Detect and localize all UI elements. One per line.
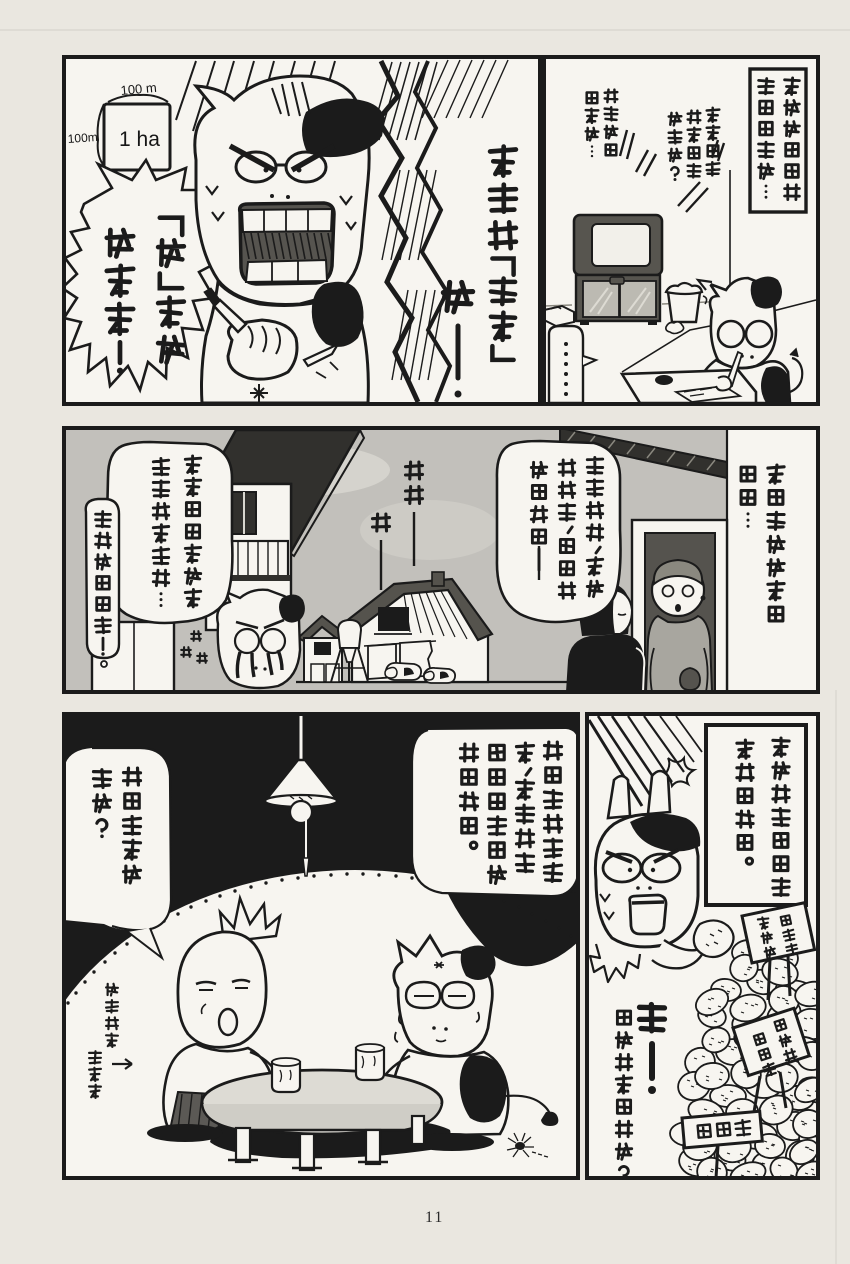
svg-text:1 ha: 1 ha	[119, 128, 160, 151]
svg-text:100 m: 100 m	[120, 80, 157, 98]
svg-text:11: 11	[425, 1209, 444, 1226]
svg-text:100m: 100m	[67, 130, 98, 146]
